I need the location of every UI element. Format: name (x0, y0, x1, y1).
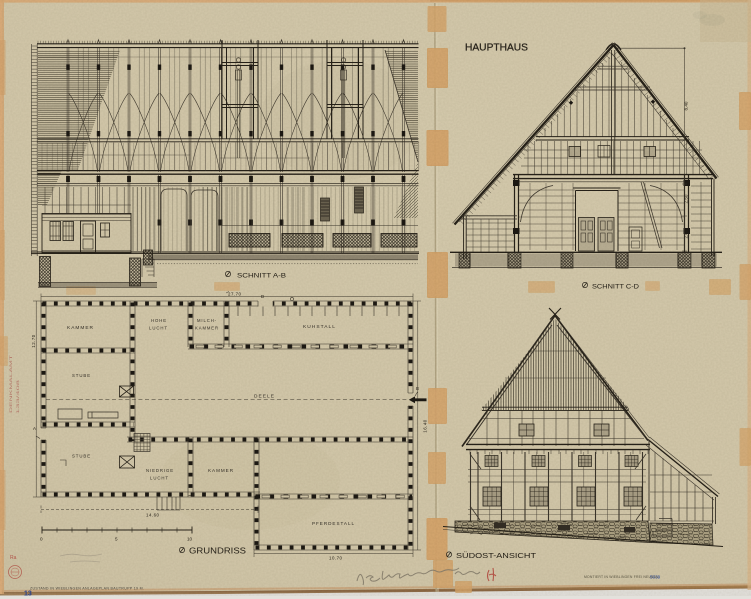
svg-text:133/408: 133/408 (16, 380, 20, 414)
svg-text:ZUSTAND IN WIEBLINGEN ANLAGE: ZUSTAND IN WIEBLINGEN ANLAGEPLAN BAUTRUP… (30, 587, 144, 591)
svg-text:MONTIERT IN WIEBLINGEN FREI: MONTIERT IN WIEBLINGEN FREI NEUBAU (584, 575, 659, 579)
svg-text:Ra: Ra (10, 555, 17, 561)
svg-text:DENKMALAMT: DENKMALAMT (9, 353, 13, 413)
svg-text:5639: 5639 (650, 575, 661, 580)
svg-text:13: 13 (24, 591, 32, 598)
